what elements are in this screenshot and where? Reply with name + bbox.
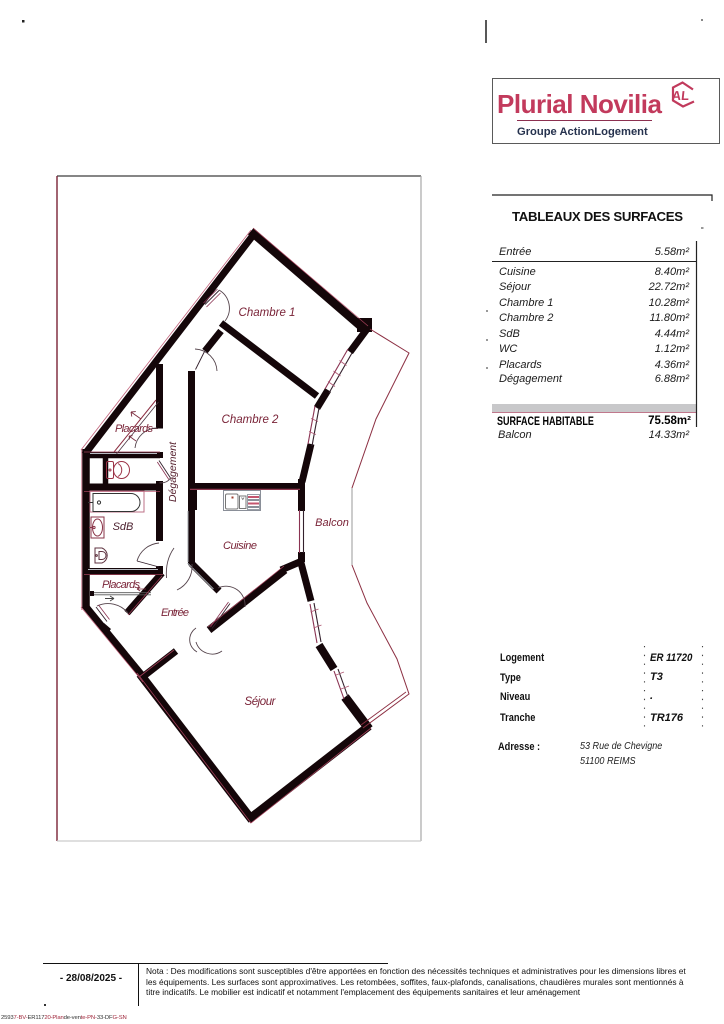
- svg-text:Chambre 2: Chambre 2: [222, 414, 279, 426]
- svg-text:SdB: SdB: [113, 521, 134, 533]
- svg-text:Cuisine: Cuisine: [223, 540, 257, 552]
- svg-text:Chambre 1: Chambre 1: [239, 307, 296, 319]
- svg-text:Dégagement: Dégagement: [167, 441, 179, 502]
- svg-text:Placards: Placards: [115, 423, 154, 435]
- svg-text:Placards: Placards: [102, 579, 141, 591]
- svg-text:Balcon: Balcon: [315, 517, 349, 529]
- svg-text:Séjour: Séjour: [245, 696, 277, 708]
- svg-text:Entrée: Entrée: [161, 607, 189, 619]
